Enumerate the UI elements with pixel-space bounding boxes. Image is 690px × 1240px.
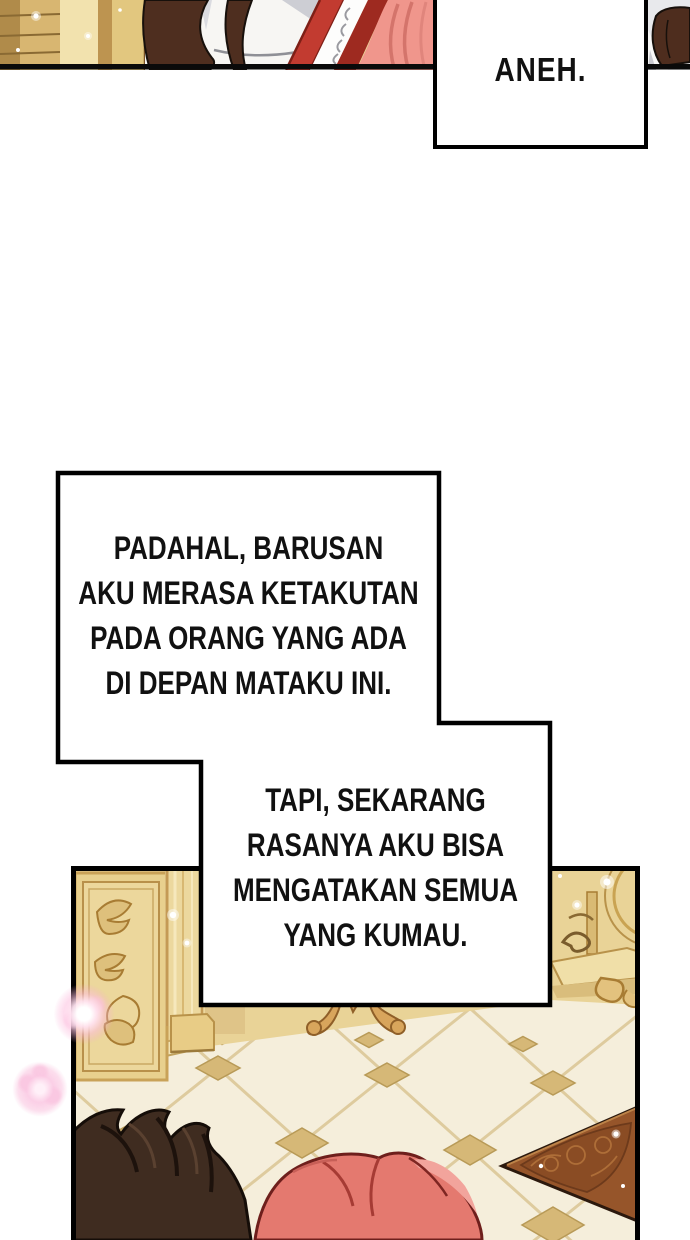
scroll-foot — [596, 978, 623, 1002]
speech-line: MENGATAKAN SEMUA — [201, 867, 550, 912]
gold-cabinet — [0, 0, 145, 70]
dark-hair-wedge — [653, 7, 690, 66]
comic-page: PADAHAL, BARUSAN AKU MERASA KETAKUTAN PA… — [0, 0, 690, 1240]
speech-line: ANEH. — [494, 50, 586, 88]
speech-line: AKU MERASA KETAKUTAN — [58, 570, 439, 615]
speech-bubble-aneh: ANEH. — [433, 0, 648, 149]
speech-bubble-padahal: PADAHAL, BARUSAN AKU MERASA KETAKUTAN PA… — [58, 525, 439, 705]
pillar-base — [171, 1014, 214, 1052]
speech-bubble-tapi: TAPI, SEKARANG RASANYA AKU BISA MENGATAK… — [201, 777, 550, 957]
right-corner-figure — [648, 0, 690, 70]
speech-line: PADAHAL, BARUSAN — [58, 525, 439, 570]
speech-line: DI DEPAN MATAKU INI. — [58, 660, 439, 705]
speech-line: YANG KUMAU. — [201, 912, 550, 957]
pink-sparkle-icon — [12, 1061, 68, 1117]
speech-line: TAPI, SEKARANG — [201, 777, 550, 822]
speech-line: RASANYA AKU BISA — [201, 822, 550, 867]
speech-line: PADA ORANG YANG ADA — [58, 615, 439, 660]
brown-hair — [143, 0, 252, 70]
